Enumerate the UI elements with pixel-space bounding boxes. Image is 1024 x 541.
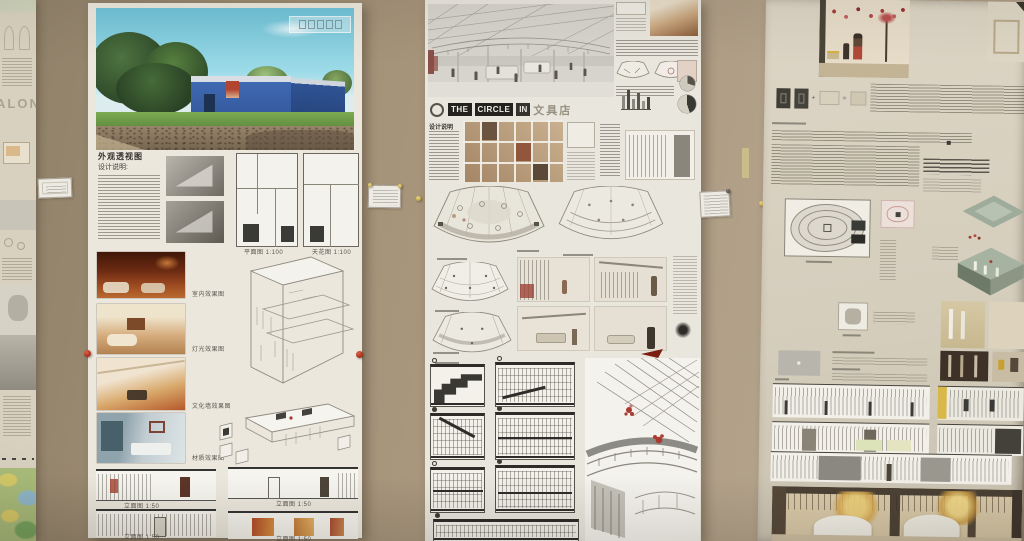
edge-photo — [0, 335, 36, 390]
intro-text-lines — [870, 84, 1024, 114]
elevation-caption: 立面图 1:50 — [276, 502, 311, 508]
edge-text — [3, 396, 31, 436]
plan-caption-bar — [437, 258, 467, 260]
elevation-post — [784, 400, 787, 414]
organic-floor-plan — [784, 198, 871, 257]
plan-dark-room — [851, 234, 865, 243]
blossom-branch — [824, 1, 910, 28]
poster1-description-text — [98, 175, 160, 241]
poster1-heading: 外观透视图 — [98, 153, 143, 161]
design-note-heading: 设计说明 — [429, 122, 453, 131]
analysis-thumb — [616, 2, 646, 15]
atrium-cutaway-drawing — [585, 358, 700, 541]
elevation-strip — [772, 383, 930, 419]
paragraph-text — [771, 144, 920, 186]
small-tree — [885, 18, 888, 62]
elevation-item — [964, 399, 969, 411]
overlay-glyph — [335, 20, 342, 29]
overlay-glyph — [299, 20, 306, 29]
salon-watermark: ALON — [0, 96, 40, 111]
plan-center-core — [823, 224, 831, 232]
pink-diagram — [880, 200, 914, 229]
arch-drawing — [19, 26, 30, 50]
sofa-shape — [107, 334, 137, 346]
wall-label-text — [373, 190, 398, 205]
red-dot-cluster — [967, 233, 981, 241]
poster-middle: THE CIRCLE IN 文具店 设计说明 — [425, 0, 701, 541]
yellow-pin-icon — [368, 183, 372, 187]
analysis-photo — [650, 0, 698, 36]
logo-swatch — [850, 91, 866, 105]
bed-shape — [141, 283, 165, 293]
figure-dark — [180, 477, 190, 497]
bar-chart-graphic — [621, 84, 651, 111]
yellow-tape — [742, 148, 749, 178]
sketch-column — [673, 256, 697, 316]
plan-caption-bar — [806, 261, 832, 263]
text-heading-bar — [832, 368, 860, 370]
mid-floor-line — [433, 490, 483, 492]
floor-plan — [303, 153, 359, 247]
poster2-title: THE CIRCLE IN 文具店 — [448, 102, 572, 117]
bold-list-lines — [923, 158, 989, 175]
logo-swatch — [819, 91, 839, 105]
plan-caption-bar — [435, 310, 459, 312]
section-drawing — [430, 364, 485, 407]
stair-study-image — [166, 201, 224, 243]
logo-square — [794, 88, 808, 108]
small-elevation-drawing — [625, 130, 695, 180]
small-tree-bloom — [878, 12, 896, 24]
photo-caption: 灯光效果图 — [192, 347, 225, 353]
frame-shape — [149, 421, 165, 433]
artwork-warm — [294, 518, 314, 536]
left-edge-poster: ALON — [0, 0, 36, 541]
elevation-drawing — [96, 469, 216, 501]
interior-photo — [97, 358, 185, 410]
tiny-dark — [896, 212, 901, 217]
pie-chart-graphic — [680, 76, 695, 91]
interior-render-thumb — [594, 257, 667, 302]
pale-yellow-patch — [856, 439, 882, 450]
sofa-shape — [607, 335, 635, 344]
ceiling-line — [522, 313, 586, 319]
plan-dark-room — [851, 220, 865, 230]
elevation-item — [990, 400, 995, 412]
overlay-glyph — [326, 20, 333, 29]
pie-chart-graphic — [678, 95, 696, 113]
light-streak — [974, 355, 977, 377]
plan-core — [310, 226, 324, 242]
poster1-subheading: 设计说明: — [98, 164, 128, 171]
elevation-post — [824, 401, 827, 415]
elevation-texture — [939, 428, 993, 453]
logo-glyph — [780, 93, 786, 103]
overlay-glyph — [308, 20, 315, 29]
render-title-overlay — [289, 16, 351, 33]
section-fill — [498, 471, 572, 508]
red-pin-icon — [356, 351, 363, 358]
diagram-note-text — [873, 312, 915, 325]
bed-shape — [103, 282, 129, 293]
section-fill — [436, 525, 576, 537]
elevation-texture — [338, 473, 356, 499]
wall-label — [38, 177, 73, 198]
dark-interior-photo — [940, 351, 988, 382]
section-drawing — [495, 412, 575, 460]
red-accent — [520, 284, 534, 298]
ground-dark-patch — [246, 130, 354, 150]
edge-site-map — [0, 468, 36, 541]
logo-square — [776, 88, 790, 108]
material-dark-cell — [482, 122, 497, 140]
poster-left: 外观透视图 设计说明: 平面图 1:100 天花图 1:100 — [88, 3, 362, 538]
figure — [651, 276, 657, 296]
top-right-image — [987, 1, 1024, 62]
gray-photo — [778, 350, 820, 376]
site-fan-diagram — [616, 61, 650, 83]
exploded-axonometric-drawing — [223, 249, 358, 399]
building-wall-poster — [226, 81, 239, 98]
interior-render-thumb — [517, 306, 590, 351]
elevation-drawing — [228, 467, 358, 499]
yellow-pin-icon — [398, 184, 402, 188]
overlay-glyph — [317, 20, 324, 29]
tree — [116, 63, 196, 115]
ceiling-beam — [599, 261, 663, 268]
photo-speck — [797, 362, 800, 365]
blossom-render — [819, 0, 910, 78]
wall-label — [368, 185, 401, 209]
photo-caption: 室内效果图 — [192, 292, 225, 298]
edge-dash-strip — [2, 458, 34, 460]
paragraph-heading-bar — [772, 122, 806, 125]
wall-label — [699, 190, 730, 218]
section-drawing — [430, 413, 485, 460]
floor — [771, 534, 1021, 541]
edge-axon-detail — [6, 146, 20, 156]
shelf-photo — [992, 352, 1024, 382]
pale-yellow-patch — [887, 440, 911, 451]
floor-plan — [236, 153, 298, 247]
elevation-post — [868, 402, 871, 416]
ground-strip — [819, 63, 909, 78]
elevation-texture — [629, 135, 669, 177]
paragraph-text — [772, 130, 972, 143]
stair-light-shape — [172, 161, 218, 191]
title-word-block: THE — [448, 103, 472, 116]
counter-shape — [131, 443, 171, 455]
plus-sign: + — [811, 95, 815, 102]
elevation-caption: 立面图 1:50 — [124, 535, 159, 541]
gray-section — [818, 456, 860, 481]
counter-shape — [536, 333, 566, 343]
edge-sketch-blob — [8, 295, 28, 321]
analysis-text — [616, 40, 698, 58]
iso-volume-diagram — [955, 243, 1024, 300]
plan-caption-bar — [563, 254, 593, 256]
fan-ceiling-plan — [555, 186, 667, 250]
tiny-dark-square — [947, 141, 951, 145]
section-drawing — [433, 519, 579, 541]
edge-top-strip — [0, 0, 36, 12]
photo-highlight — [155, 256, 179, 270]
dark-post — [1011, 490, 1022, 541]
elevation-texture — [98, 474, 154, 500]
elevation-label-bar — [775, 378, 789, 380]
section-drawing — [495, 362, 575, 407]
plan-core — [281, 226, 294, 242]
plan-wall — [304, 184, 359, 185]
shelf-texture — [601, 272, 641, 298]
plan-wall — [257, 154, 258, 214]
material-red-cell — [516, 143, 531, 161]
circle-logo-icon — [430, 103, 444, 117]
wall-label-text — [704, 194, 729, 214]
mid-floor-line — [498, 437, 572, 439]
ceiling-line — [97, 360, 184, 374]
bottom-interior-render — [771, 486, 1022, 541]
detail-blob — [845, 308, 861, 324]
plan-wall — [275, 188, 276, 247]
light-streak — [960, 355, 963, 377]
text-lines — [832, 357, 927, 366]
figure — [572, 329, 577, 345]
section-drawing — [495, 465, 575, 513]
interior-photo — [97, 413, 185, 463]
stair-section — [434, 371, 482, 403]
chandelier-sketch — [675, 322, 691, 338]
plan-wall — [237, 188, 298, 189]
table-with-fruit — [827, 51, 839, 59]
elevation-drawing — [96, 509, 216, 537]
tiny-text-column — [880, 240, 897, 280]
dark-post — [771, 486, 786, 541]
yellow-block — [937, 387, 947, 419]
elevation-texture — [774, 387, 926, 416]
title-suffix: 文具店 — [533, 102, 572, 118]
elevation-door — [268, 477, 280, 499]
dark-corner — [1010, 2, 1024, 18]
section-drawing — [430, 467, 485, 513]
artwork-warm — [252, 518, 274, 536]
text-lines — [832, 373, 927, 382]
fireplace-shape — [127, 318, 145, 330]
red-pin-icon — [84, 350, 91, 357]
exhibition-wall-photo: ALON — [0, 0, 1024, 541]
poster-right: + = — [757, 0, 1024, 541]
text-heading-bar — [832, 351, 874, 354]
detail-thumb-text — [567, 152, 595, 180]
furniture-lines — [993, 20, 1020, 54]
elevation-strip-yellow — [937, 386, 1024, 421]
fan-floor-plan — [430, 186, 548, 254]
edge-image — [0, 200, 36, 230]
edge-text — [2, 58, 32, 88]
atrium-perspective-render — [428, 4, 614, 97]
plan-wall — [330, 184, 331, 247]
yellow-pin-icon — [416, 196, 421, 201]
artwork-warm — [330, 518, 344, 536]
exterior-render — [96, 8, 354, 150]
figure-dark — [886, 464, 891, 481]
white-figure-streak — [961, 311, 965, 339]
dark-item — [1010, 358, 1018, 372]
yellow-item — [998, 360, 1004, 370]
title-word-block: CIRCLE — [475, 103, 514, 116]
dark-pin-icon — [726, 189, 730, 193]
mid-floor-line — [498, 492, 572, 494]
white-figure-streak — [949, 309, 953, 339]
artwork-red — [110, 479, 118, 493]
elevation-texture — [949, 390, 1019, 418]
stair-light-shape — [172, 207, 218, 237]
equals-sign: = — [842, 95, 846, 102]
tiny-text-block — [932, 247, 958, 261]
figure-dark — [320, 477, 329, 497]
logo-glyph — [798, 94, 804, 104]
interior-photo — [97, 252, 185, 298]
diagram-caption-bar — [843, 334, 861, 336]
mid-text-column — [600, 124, 620, 176]
design-note-column: 设计说明 — [429, 122, 459, 182]
figure-adult — [853, 33, 862, 59]
elevation-caption: 立面图 1:50 — [276, 537, 311, 541]
edge-circles — [4, 238, 13, 247]
gray-section — [920, 457, 950, 481]
wall-label-text — [46, 186, 66, 194]
analysis-thumb-text — [616, 18, 646, 32]
dark-panel — [995, 429, 1021, 454]
render-grid-heading-bar — [517, 250, 539, 252]
section-caption-bar — [433, 352, 459, 354]
figure-dark — [647, 327, 655, 349]
cutaway-axonometric-drawing — [216, 398, 358, 467]
long-elevation-strip — [770, 451, 1011, 485]
small-detail-diagram — [838, 302, 868, 330]
edge-circles — [17, 242, 25, 250]
interior-render-thumb — [594, 306, 667, 351]
material-dark-cell — [533, 164, 548, 180]
title-word-block: IN — [516, 103, 530, 116]
material-sample-grid — [463, 120, 563, 182]
arch-drawing — [4, 26, 14, 50]
figure — [562, 280, 567, 294]
material-photo — [989, 302, 1024, 350]
material-photo — [941, 301, 986, 349]
cabinet-shape — [101, 421, 123, 451]
light-streak — [948, 355, 951, 377]
elevation-door-dark — [802, 429, 816, 451]
elevation-door — [154, 517, 166, 537]
edge-text — [2, 258, 32, 280]
figure-child — [843, 43, 849, 59]
interior-photo — [97, 304, 185, 354]
elevation-dark-band — [674, 135, 690, 177]
plan-core — [243, 224, 259, 242]
elevation-post — [910, 402, 913, 416]
small-fan-plan — [430, 262, 510, 308]
interior-render-thumb — [517, 257, 590, 302]
elevation-strip — [937, 424, 1023, 456]
design-note-text — [429, 131, 459, 181]
section-fill — [433, 419, 482, 455]
counter-shape — [127, 390, 147, 400]
stair-study-image — [166, 156, 224, 196]
detail-thumb — [567, 122, 595, 148]
elevation-drawing — [228, 511, 358, 539]
